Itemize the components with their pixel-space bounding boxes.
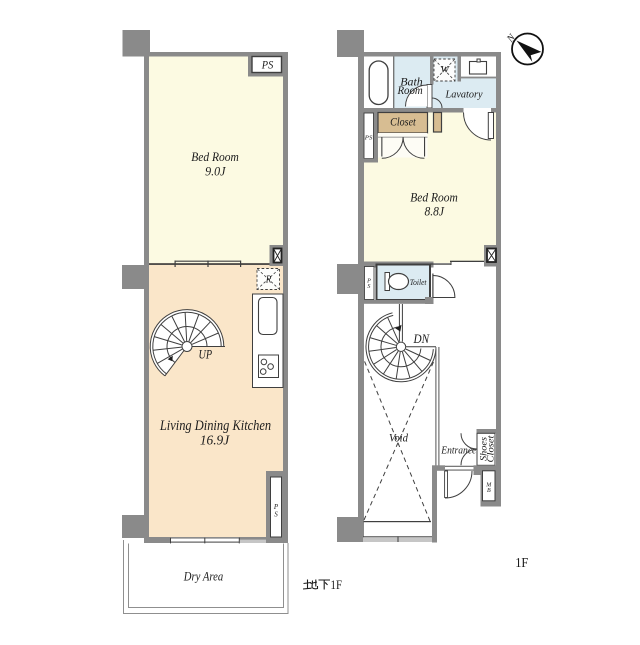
svg-text:Living Dining Kitchen: Living Dining Kitchen (159, 418, 271, 434)
svg-text:9.0J: 9.0J (205, 164, 226, 179)
svg-text:1F: 1F (515, 556, 528, 571)
svg-text:B: B (487, 488, 491, 494)
svg-text:W: W (441, 66, 451, 76)
svg-text:1F: 1F (331, 577, 343, 592)
svg-text:Entrance: Entrance (440, 446, 476, 457)
svg-text:Closet: Closet (390, 117, 416, 129)
svg-text:PS: PS (364, 134, 373, 141)
svg-text:Dry Area: Dry Area (183, 569, 224, 584)
svg-text:Void: Void (389, 430, 409, 444)
svg-text:UP: UP (199, 347, 213, 361)
svg-text:Closet: Closet (486, 435, 496, 463)
svg-text:8.8J: 8.8J (424, 204, 445, 219)
svg-text:DN: DN (413, 332, 430, 346)
svg-text:Room: Room (397, 85, 423, 97)
svg-text:Bed Room: Bed Room (410, 189, 458, 204)
svg-text:16.9J: 16.9J (200, 433, 230, 448)
svg-text:S: S (367, 284, 370, 290)
svg-text:Bed Room: Bed Room (191, 149, 239, 164)
svg-text:S: S (274, 511, 278, 519)
svg-text:Toilet: Toilet (410, 277, 427, 287)
svg-text:Lavatory: Lavatory (445, 88, 483, 100)
svg-text:PS: PS (261, 57, 273, 71)
svg-text:R: R (265, 274, 272, 285)
